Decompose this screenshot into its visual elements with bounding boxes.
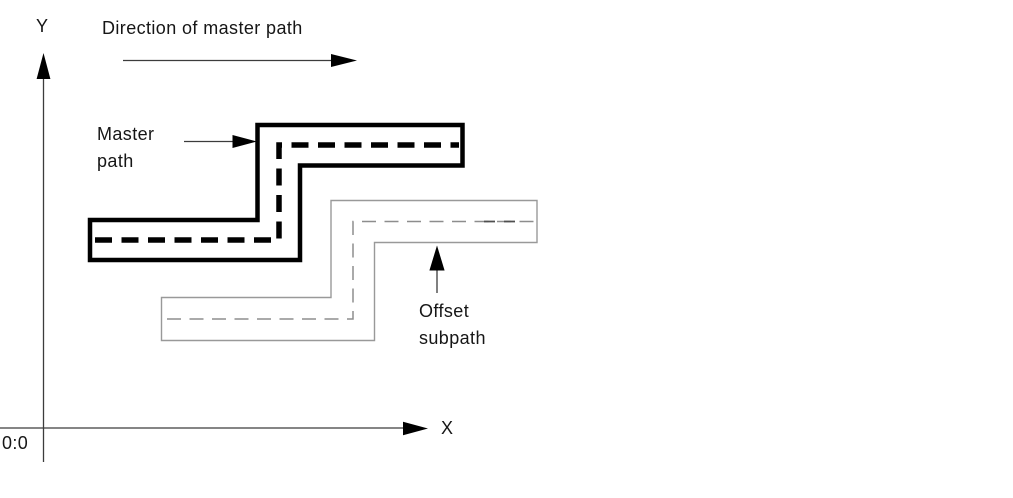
master-path-label: Master path <box>97 121 154 175</box>
path-offset-diagram <box>0 0 1013 498</box>
x-axis-label: X <box>441 417 453 439</box>
y-axis-label: Y <box>36 15 48 37</box>
x-axis-arrowhead-icon <box>403 422 428 435</box>
master-label-arrowhead-icon <box>233 135 258 148</box>
offset-label-arrowhead-icon <box>429 246 444 271</box>
direction-arrowhead-icon <box>331 54 357 67</box>
offset-subpath-label: Offset subpath <box>419 298 486 352</box>
y-axis-arrowhead-icon <box>37 53 51 79</box>
direction-label: Direction of master path <box>102 17 303 39</box>
diagram-canvas: Y Direction of master path Master path O… <box>0 0 1013 498</box>
origin-label: 0:0 <box>2 432 28 454</box>
